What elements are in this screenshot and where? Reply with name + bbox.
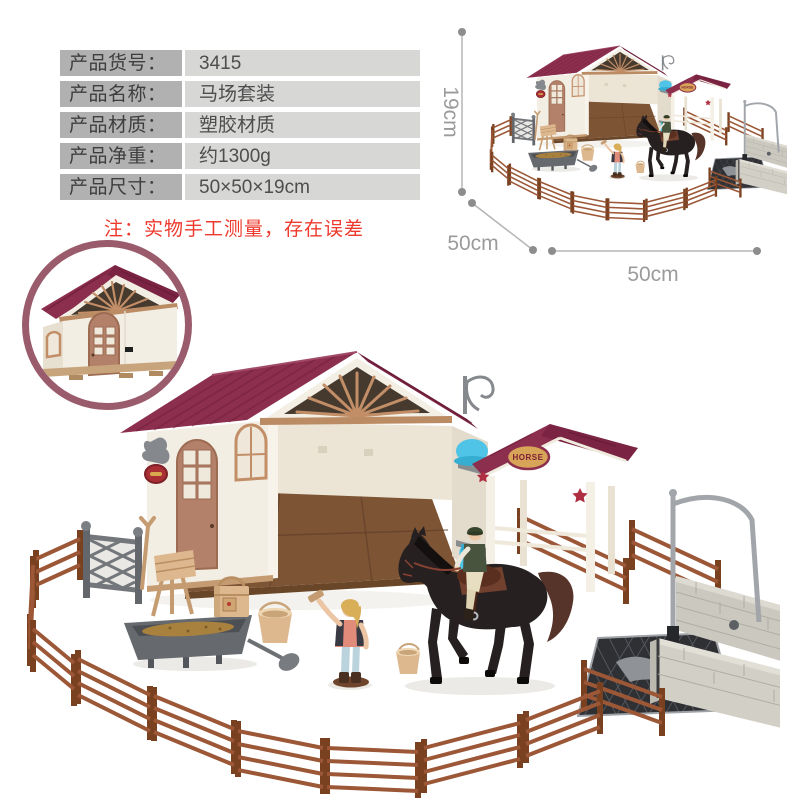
width-dimension-label: 50cm — [627, 263, 678, 286]
height-dimension-line: 19cm — [439, 28, 466, 196]
main-scene-instance — [30, 352, 780, 798]
product-detail-image: 产品货号： 3415 产品名称： 马场套装 产品材质： 塑胶材质 产品净重： 约… — [0, 0, 800, 800]
spec-row-size: 产品尺寸： 50×50×19cm — [60, 174, 420, 200]
measurement-note: 注：实物手工测量，存在误差 — [58, 214, 410, 241]
spec-label: 产品材质： — [60, 112, 182, 138]
spec-value: 马场套装 — [185, 81, 420, 107]
height-dimension-label: 19cm — [439, 86, 462, 137]
depth-dimension-label: 50cm — [447, 232, 498, 255]
spec-label: 产品货号： — [60, 50, 182, 76]
spec-value: 约1300g — [185, 143, 420, 169]
spec-row-item-number: 产品货号： 3415 — [60, 50, 420, 76]
spec-row-product-name: 产品名称： 马场套装 — [60, 81, 420, 107]
thumbnail-scene-instance — [491, 46, 787, 222]
spec-label: 产品净重： — [60, 143, 182, 169]
spec-row-net-weight: 产品净重： 约1300g — [60, 143, 420, 169]
thumbnail-product-photo — [487, 37, 787, 223]
main-product-photo: HORSE — [20, 330, 780, 800]
spec-row-material: 产品材质： 塑胶材质 — [60, 112, 420, 138]
width-dimension-line: 50cm — [548, 247, 761, 286]
spec-value: 塑胶材质 — [185, 112, 420, 138]
spec-value: 50×50×19cm — [185, 174, 420, 200]
spec-label: 产品尺寸： — [60, 174, 182, 200]
spec-label: 产品名称： — [60, 81, 182, 107]
spec-value: 3415 — [185, 50, 420, 76]
spec-table: 产品货号： 3415 产品名称： 马场套装 产品材质： 塑胶材质 产品净重： 约… — [60, 50, 420, 205]
